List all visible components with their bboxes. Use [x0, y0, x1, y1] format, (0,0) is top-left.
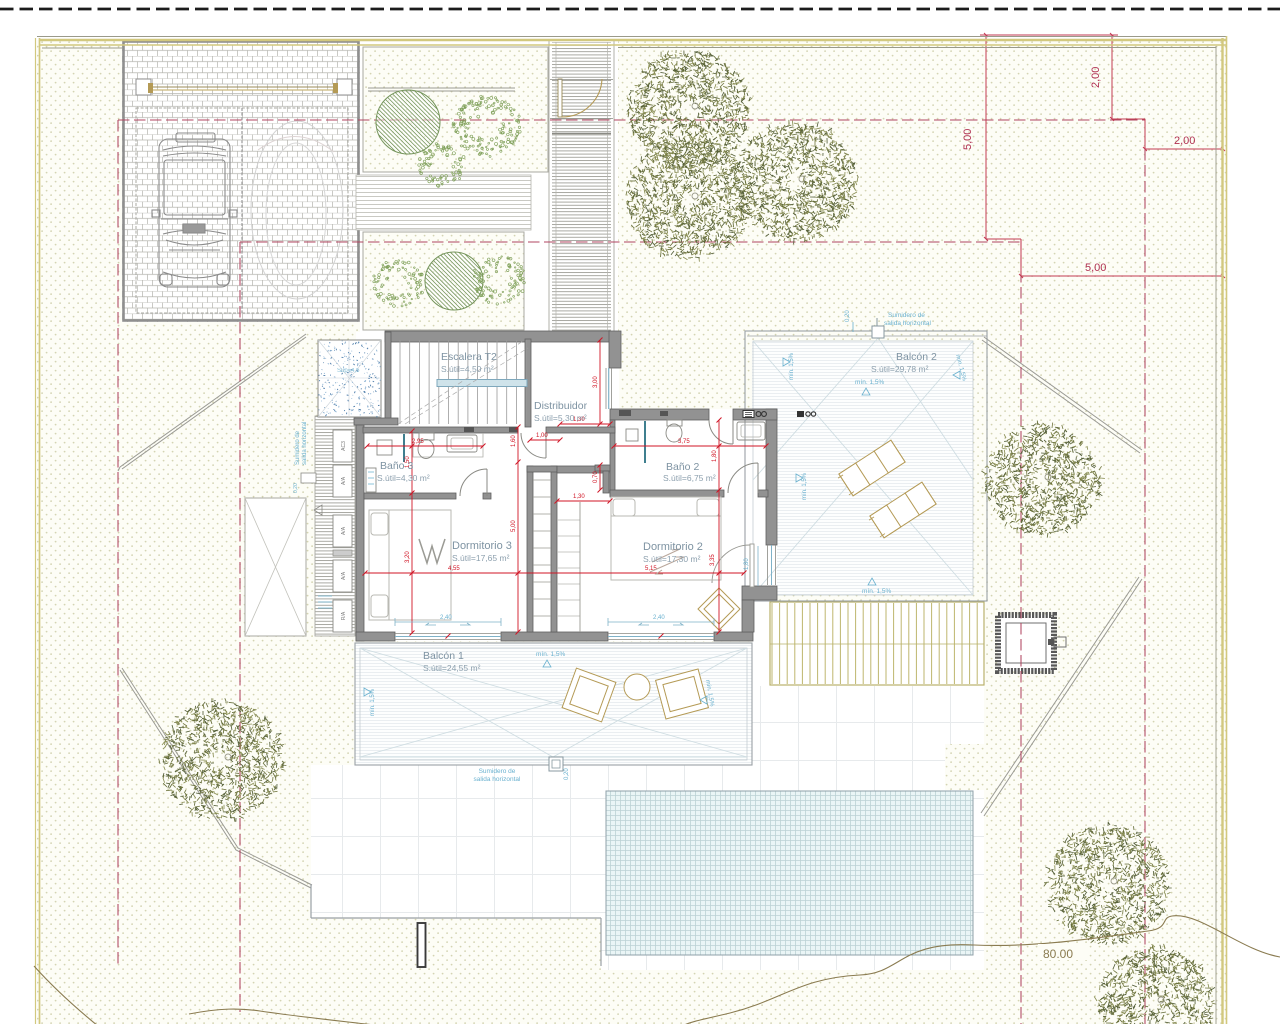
svg-text:S.útil=24,55 m²: S.útil=24,55 m² — [423, 663, 481, 673]
svg-text:2,95: 2,95 — [412, 439, 424, 445]
svg-text:S.útil=4,30 m²: S.útil=4,30 m² — [377, 473, 430, 483]
svg-text:2,00: 2,00 — [1090, 67, 1102, 88]
svg-text:mín. 1,5%: mín. 1,5% — [789, 352, 795, 380]
svg-text:S.útil=29,78 m²: S.útil=29,78 m² — [871, 364, 929, 374]
svg-text:5,00: 5,00 — [1085, 262, 1106, 274]
svg-text:3,00: 3,00 — [593, 376, 599, 388]
svg-text:salida horizontal: salida horizontal — [474, 776, 522, 783]
svg-text:mín. 1,5%: mín. 1,5% — [536, 651, 565, 658]
svg-text:0,20: 0,20 — [845, 310, 851, 322]
svg-text:0,70: 0,70 — [593, 471, 599, 483]
svg-text:Sup=4,5: Sup=4,5 — [337, 368, 360, 374]
svg-text:R/A: R/A — [341, 611, 347, 620]
svg-text:5,00: 5,00 — [511, 520, 517, 532]
svg-text:3,35: 3,35 — [710, 554, 716, 566]
svg-text:Dormitorio 2: Dormitorio 2 — [643, 541, 703, 553]
svg-text:S.útil=6,75 m²: S.útil=6,75 m² — [663, 473, 716, 483]
svg-text:mín. 1,5%: mín. 1,5% — [802, 472, 808, 500]
svg-text:1,30: 1,30 — [573, 494, 585, 500]
svg-text:mín. 1,5%: mín. 1,5% — [855, 379, 884, 386]
svg-text:A/A: A/A — [341, 476, 347, 485]
svg-text:A/A: A/A — [341, 571, 347, 580]
svg-text:1,60: 1,60 — [511, 435, 517, 447]
svg-text:2,40: 2,40 — [653, 615, 665, 621]
svg-text:1,80: 1,80 — [744, 558, 750, 570]
svg-text:2,40: 2,40 — [440, 615, 452, 621]
svg-text:S.útil=17,30 m²: S.útil=17,30 m² — [643, 554, 701, 564]
svg-text:Distribuidor: Distribuidor — [534, 400, 588, 412]
svg-text:AC3: AC3 — [341, 441, 347, 451]
svg-text:1,00: 1,00 — [536, 433, 548, 439]
svg-text:Sumidero de: Sumidero de — [479, 768, 516, 775]
svg-text:80.00: 80.00 — [1043, 947, 1073, 961]
svg-text:3,75: 3,75 — [678, 439, 690, 445]
svg-text:Sumidero de: Sumidero de — [295, 430, 301, 465]
svg-text:0,20: 0,20 — [564, 768, 570, 780]
svg-text:4,55: 4,55 — [448, 566, 460, 572]
svg-text:0,20: 0,20 — [293, 483, 299, 493]
svg-text:Dormitorio 3: Dormitorio 3 — [452, 540, 512, 552]
svg-text:Baño 3: Baño 3 — [380, 460, 413, 472]
svg-text:Escalera T2: Escalera T2 — [441, 351, 497, 363]
svg-text:1,80: 1,80 — [712, 450, 718, 462]
svg-text:Sumidero de: Sumidero de — [888, 312, 925, 319]
svg-text:A/A: A/A — [341, 526, 347, 535]
svg-text:Balcón 1: Balcón 1 — [423, 650, 464, 662]
svg-text:salida horizontal: salida horizontal — [302, 422, 308, 465]
svg-text:salida horizontal: salida horizontal — [884, 320, 932, 327]
svg-text:5,00: 5,00 — [962, 129, 974, 150]
svg-text:2,00: 2,00 — [1174, 135, 1195, 147]
svg-text:S.útil=4,50 m²: S.útil=4,50 m² — [441, 364, 494, 374]
svg-text:Baño 2: Baño 2 — [666, 461, 699, 473]
svg-text:S.útil=5,30 m²: S.útil=5,30 m² — [534, 413, 587, 423]
svg-text:3,20: 3,20 — [405, 551, 411, 563]
svg-text:mín. 1,5%: mín. 1,5% — [862, 588, 891, 595]
svg-text:S.útil=17,65 m²: S.útil=17,65 m² — [452, 553, 510, 563]
svg-text:Balcón 2: Balcón 2 — [896, 351, 937, 363]
